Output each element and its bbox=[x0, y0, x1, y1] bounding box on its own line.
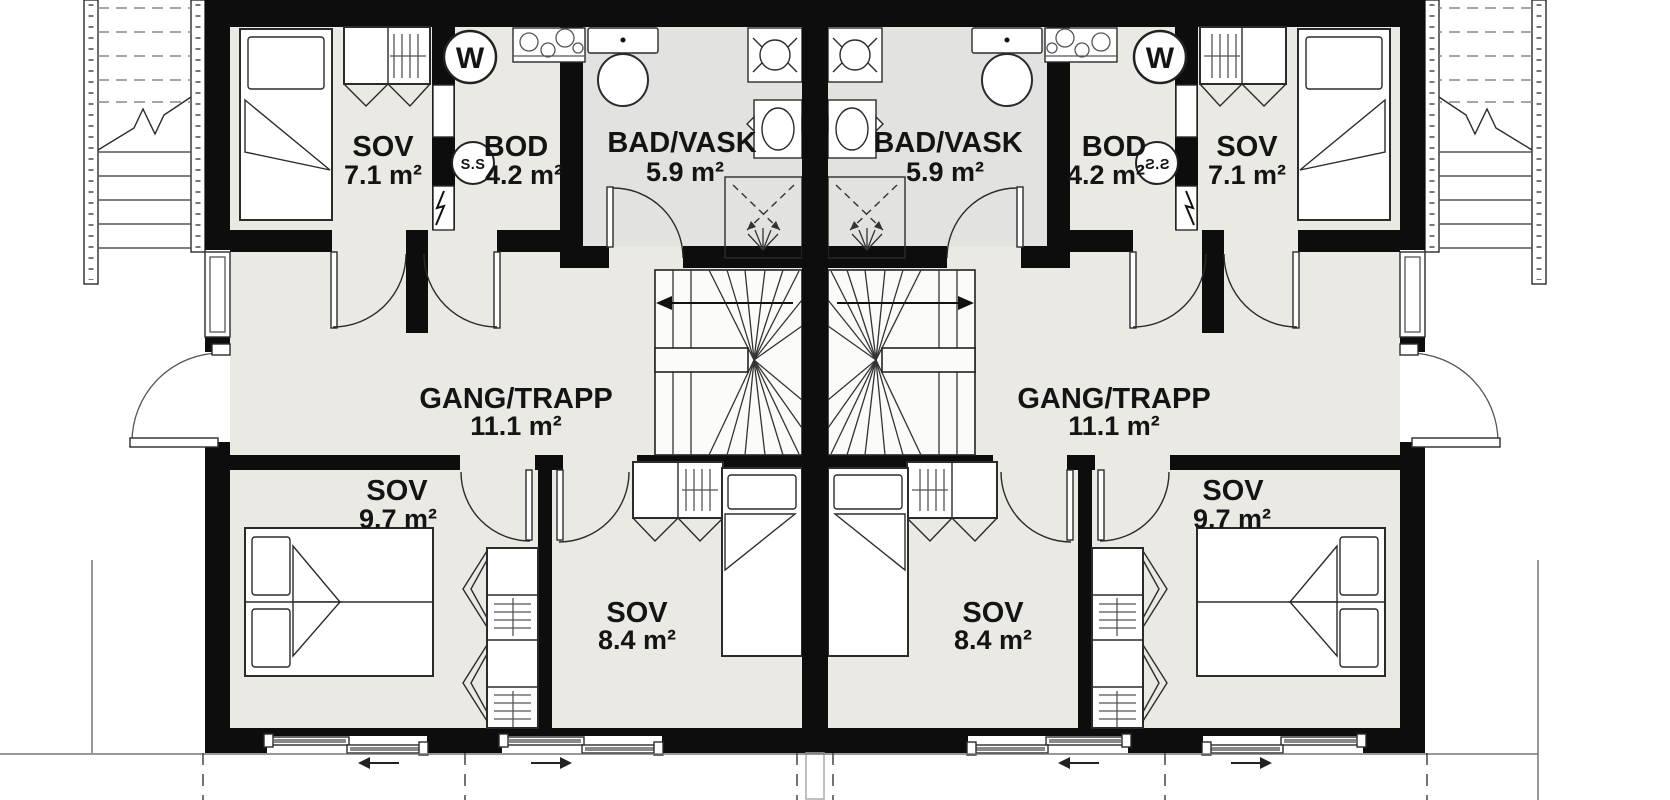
room-area-gang-trapp-left: 11.1 m² bbox=[470, 411, 562, 441]
stair-break-line bbox=[98, 97, 191, 150]
single-bed-2 bbox=[722, 468, 802, 656]
room-label-sov-7-1-right: SOV bbox=[1216, 131, 1278, 163]
room-area-sov-9-7-left: 9.7 m² bbox=[359, 504, 437, 534]
room-area-sov-7-1-left: 7.1 m² bbox=[344, 160, 422, 190]
sliding-door-1 bbox=[264, 734, 428, 769]
room-area-bad-vask-left: 5.9 m² bbox=[646, 157, 724, 187]
room-area-sov-8-4-left: 8.4 m² bbox=[598, 625, 676, 655]
stair-landing-rail bbox=[655, 348, 748, 372]
floorplan-drawing: W S.S bbox=[0, 0, 1670, 800]
room-area-sov-7-1-right: 7.1 m² bbox=[1208, 160, 1286, 190]
hall-window bbox=[205, 252, 230, 337]
internal-stairs bbox=[655, 270, 802, 455]
room-label-bad-vask-right: BAD/VASK bbox=[873, 127, 1022, 159]
party-wall bbox=[802, 0, 828, 799]
room-area-sov-9-7-right: 9.7 m² bbox=[1193, 504, 1271, 534]
room-label-bod-left: BOD bbox=[484, 131, 548, 163]
floorplan-page: W S.S bbox=[0, 0, 1670, 800]
sink-cooktop-symbol bbox=[513, 28, 585, 62]
room-area-bod-right: 4.2 m² bbox=[1067, 160, 1145, 190]
room-area-sov-8-4-right: 8.4 m² bbox=[954, 625, 1032, 655]
water-heater-letter: W bbox=[456, 42, 485, 75]
water-heater-symbol: W bbox=[444, 31, 496, 83]
fuse-cabinet-letters: S.S bbox=[461, 157, 486, 173]
room-label-bod-right: BOD bbox=[1082, 131, 1146, 163]
vent-fan-symbol bbox=[748, 28, 802, 82]
sliding-door-2 bbox=[499, 734, 663, 769]
double-bed bbox=[245, 528, 433, 676]
room-label-bad-vask-left: BAD/VASK bbox=[607, 127, 756, 159]
room-label-sov-9-7-right: SOV bbox=[1202, 475, 1264, 507]
room-label-sov-9-7-left: SOV bbox=[366, 475, 428, 507]
single-bed bbox=[240, 29, 332, 220]
entry-door bbox=[130, 344, 230, 447]
room-label-sov-7-1-left: SOV bbox=[352, 131, 414, 163]
room-area-bad-vask-right: 5.9 m² bbox=[906, 157, 984, 187]
exterior-staircase bbox=[84, 0, 205, 284]
room-area-bod-left: 4.2 m² bbox=[485, 160, 563, 190]
room-area-gang-trapp-right: 11.1 m² bbox=[1068, 411, 1160, 441]
